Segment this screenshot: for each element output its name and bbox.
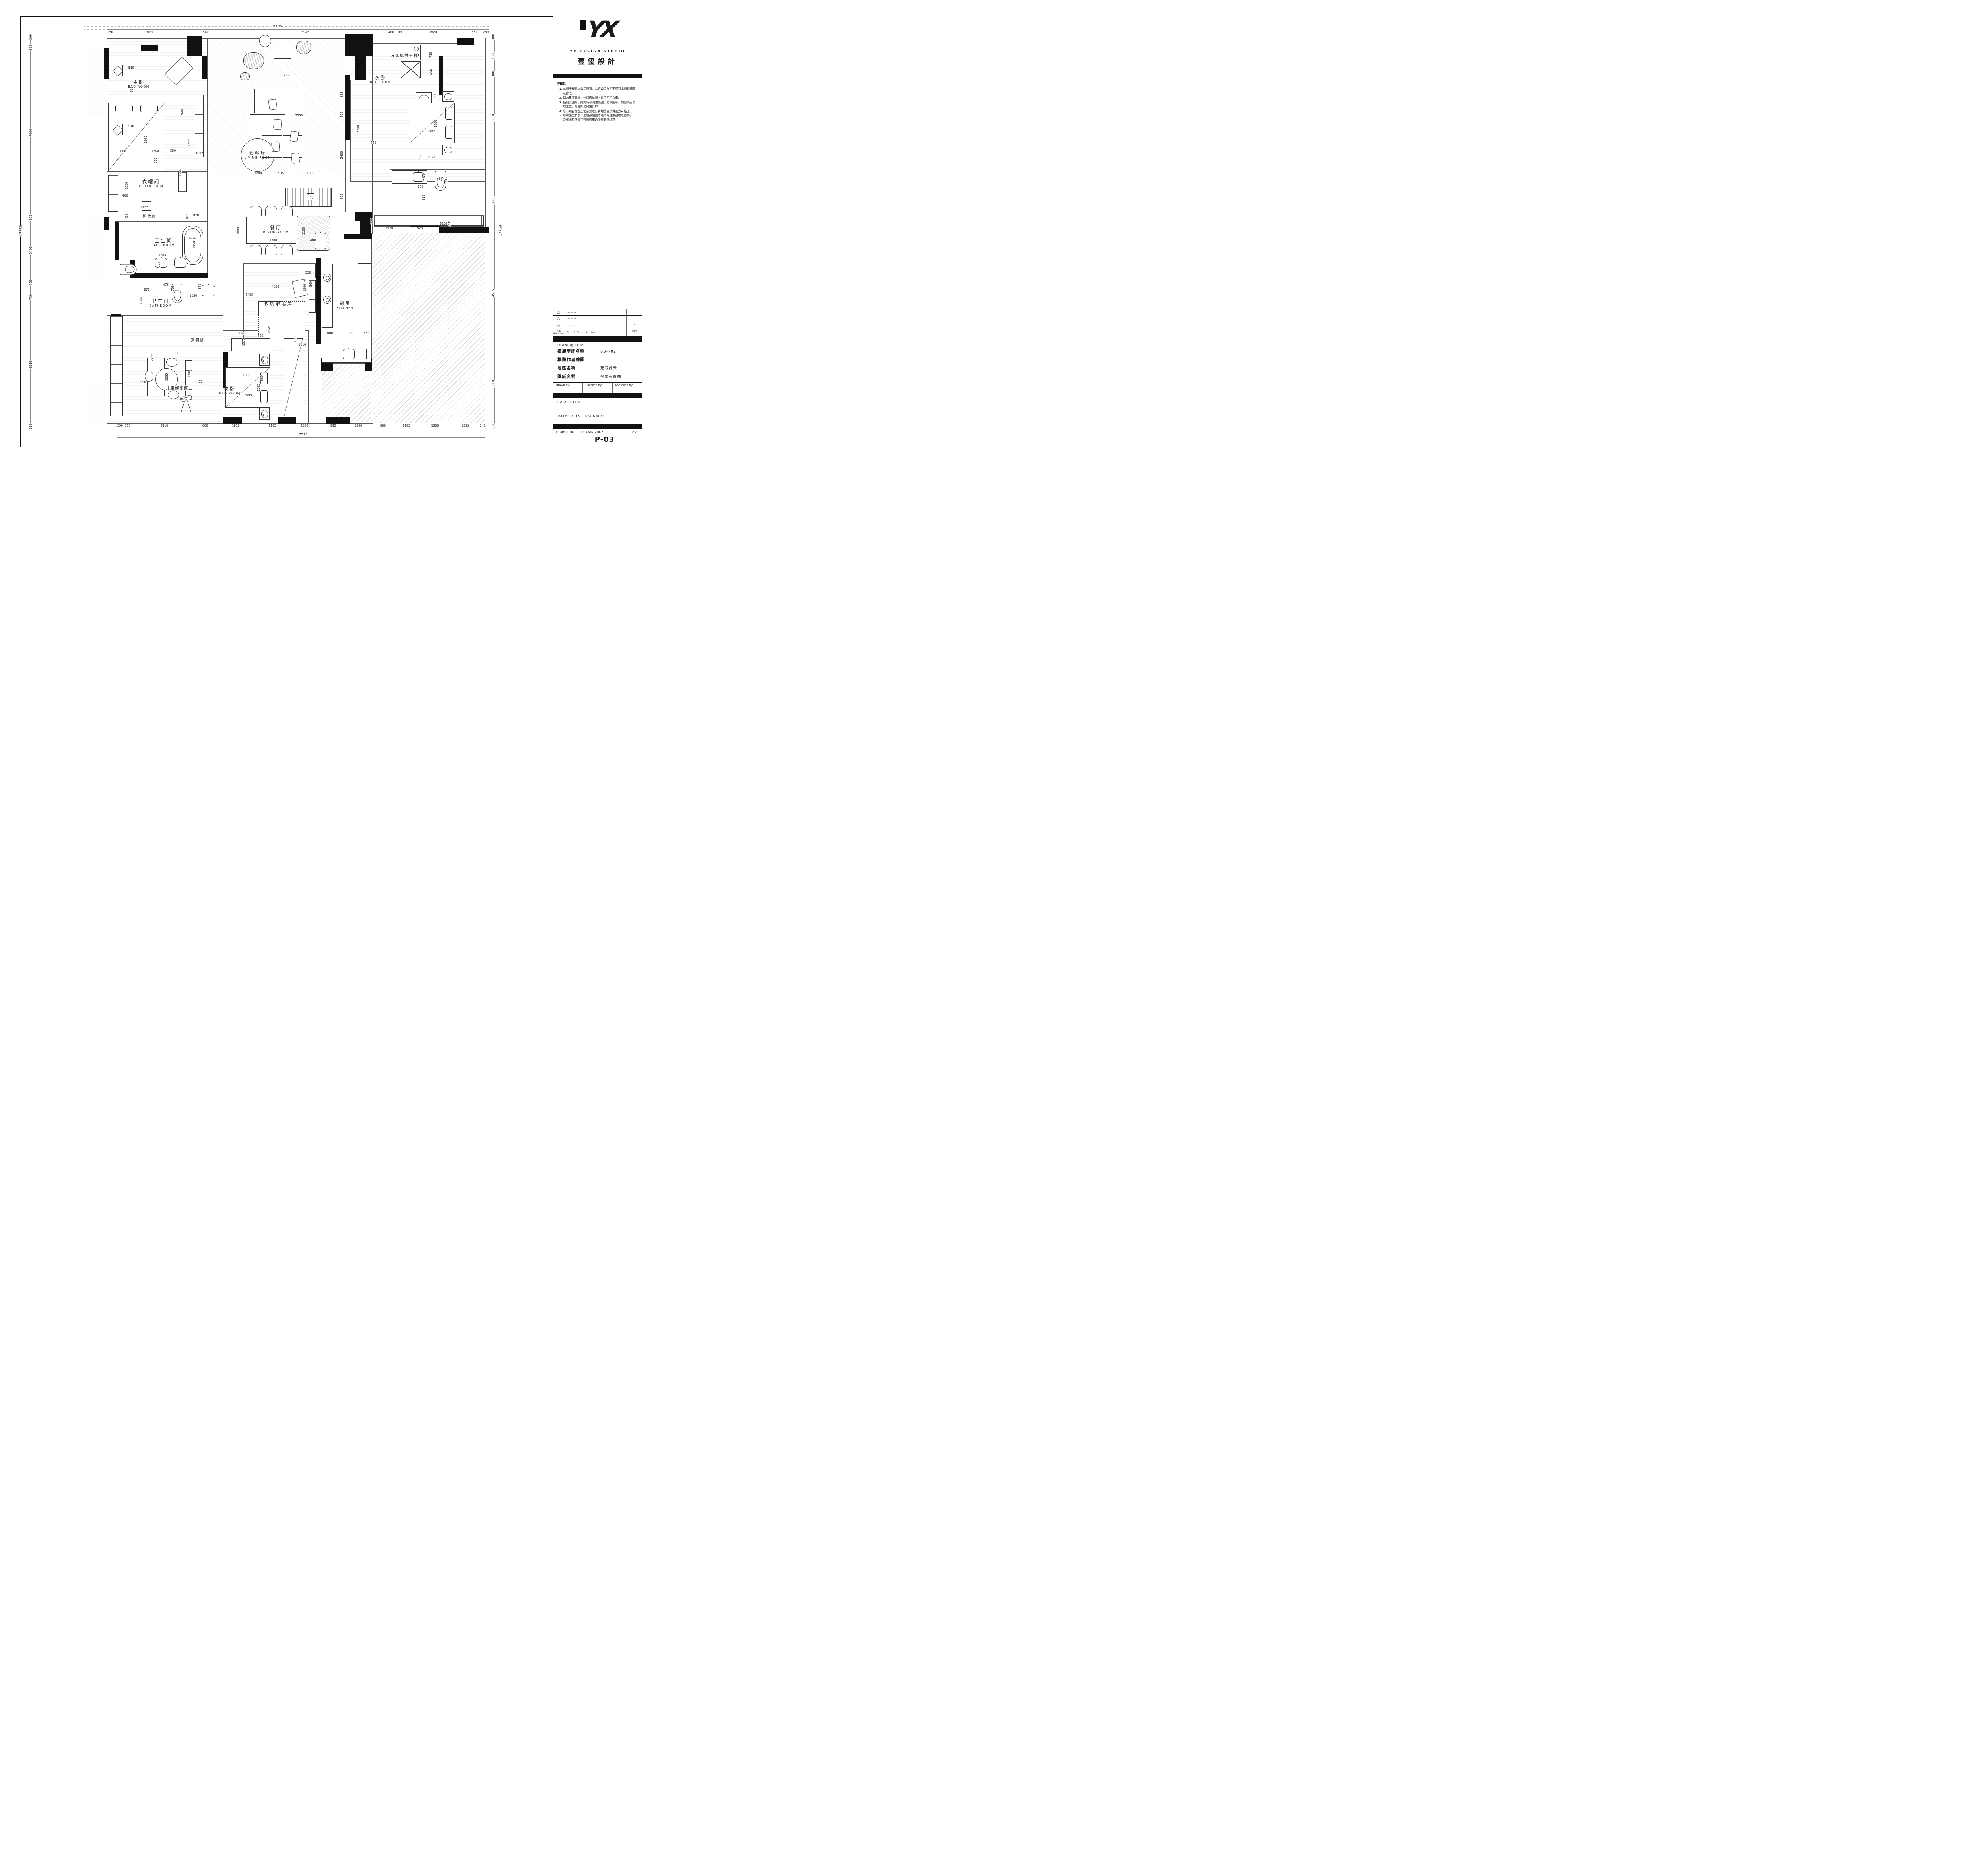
floor-hatch bbox=[85, 38, 106, 424]
dim-label: 600 bbox=[122, 194, 128, 198]
dining-chair bbox=[250, 245, 262, 255]
kitchen-sink bbox=[343, 349, 355, 359]
dim-label: 2700 bbox=[151, 353, 154, 361]
dim-label: 400 bbox=[186, 213, 189, 219]
dim-label: 1110 bbox=[298, 343, 306, 346]
revision-header: No. Revision Brief Description Date bbox=[553, 328, 642, 337]
dining-chair bbox=[281, 245, 293, 255]
title-block: YX YX DESIGN STUDIO 壹玺設計 附註: 此圖版權歸本公司所有，… bbox=[553, 16, 642, 447]
sofa-pillow bbox=[273, 119, 282, 130]
dim-label: 17760 bbox=[499, 225, 503, 236]
dim-label: 1540 bbox=[200, 31, 209, 34]
dim-label: 440 bbox=[370, 141, 377, 144]
dim-label: 1200 bbox=[254, 172, 262, 175]
revision-date: - bbox=[626, 322, 642, 328]
dining-chair bbox=[281, 206, 293, 216]
toilet-bowl bbox=[125, 266, 135, 273]
faucet-icon bbox=[208, 284, 209, 285]
kitchen-tray bbox=[358, 349, 367, 359]
dim-label: 1235 bbox=[461, 424, 469, 427]
dim-label: 350 bbox=[170, 149, 176, 153]
dim-label: 400 bbox=[125, 213, 128, 219]
field-label: 圖紙名稱 bbox=[557, 373, 600, 379]
dim-label: 800 bbox=[340, 111, 344, 118]
wall-segment bbox=[326, 417, 350, 424]
kids-chair bbox=[166, 358, 177, 367]
dim-label: 910 bbox=[422, 194, 425, 201]
dim-label: 1105 bbox=[402, 424, 410, 427]
dim-label: 280 bbox=[483, 31, 489, 34]
island-sink bbox=[315, 233, 326, 249]
wall-line bbox=[107, 38, 107, 424]
dim-label: 400 bbox=[388, 31, 394, 34]
dim-label: 1000 bbox=[237, 227, 240, 235]
dim-label: 1200 bbox=[188, 369, 191, 378]
field-label: 樓層房間名稱 bbox=[557, 348, 600, 354]
dim-label: 550 bbox=[158, 262, 161, 268]
wall-segment bbox=[355, 56, 366, 80]
revision-no-label: No. Revision bbox=[553, 328, 564, 336]
dim-label: 920 bbox=[193, 214, 199, 217]
dim-label: 475 bbox=[163, 283, 169, 287]
studio-name-cn: 壹玺設計 bbox=[553, 56, 642, 66]
toilet-master bbox=[120, 264, 137, 275]
dim-label: 1500 bbox=[294, 334, 297, 342]
dim-label: 600 bbox=[340, 193, 344, 200]
dim-label: 540 bbox=[198, 283, 202, 290]
wall-line bbox=[372, 233, 485, 233]
drawing-no-cell: DRAWING NO.: P-03 bbox=[579, 429, 628, 447]
revision-desc: ------- bbox=[564, 311, 626, 314]
faucet-icon bbox=[161, 257, 162, 258]
dim-label: 1500 bbox=[303, 283, 307, 292]
stove-burner bbox=[323, 274, 331, 282]
room-name-en: DININGROOM bbox=[263, 231, 289, 235]
dimension-line bbox=[107, 35, 489, 35]
triangle-icon: △ bbox=[553, 322, 564, 328]
field-row: 樓層房間名稱 6B-702 bbox=[557, 348, 638, 354]
room-bedroom-right: 次卧BED ROOM bbox=[370, 75, 391, 84]
circle-detail bbox=[444, 93, 452, 101]
dim-label: 300 bbox=[492, 34, 495, 40]
dim-label: 780 bbox=[29, 294, 33, 300]
dimension-line bbox=[117, 429, 485, 429]
divider-bar bbox=[553, 337, 642, 342]
wall-segment bbox=[439, 227, 489, 233]
basin-2 bbox=[202, 285, 215, 296]
burner-ring bbox=[326, 298, 330, 302]
room-name-cn: 多功能书房 bbox=[263, 302, 293, 307]
cabinet-master bbox=[195, 95, 204, 157]
dim-label: 3805 bbox=[492, 196, 495, 204]
dim-label: 17760 bbox=[20, 225, 23, 236]
dimension-line bbox=[107, 29, 489, 30]
room-name-en: CLOAKROOM bbox=[139, 185, 163, 188]
burner-ring bbox=[326, 276, 330, 280]
dim-label: 550 bbox=[140, 381, 146, 384]
revision-row: △ ------- - bbox=[553, 322, 642, 328]
dim-label: 650 bbox=[363, 332, 370, 335]
armchair-living bbox=[274, 43, 291, 59]
dim-label: 850 bbox=[417, 185, 424, 188]
room-name-cn: 衣帽间 bbox=[139, 179, 163, 185]
dim-label: 550 bbox=[419, 154, 422, 161]
logo-mark: YX bbox=[553, 19, 642, 48]
faucet-icon bbox=[320, 232, 321, 233]
plant-3 bbox=[296, 41, 311, 54]
dim-label: 550 bbox=[260, 375, 264, 381]
tv-unit bbox=[307, 193, 314, 200]
dim-label: 1790 bbox=[179, 168, 182, 177]
dim-label: 350 bbox=[370, 218, 373, 224]
dim-label: 1130 bbox=[189, 294, 197, 297]
side-table bbox=[259, 35, 271, 47]
wall-segment bbox=[278, 417, 296, 424]
dim-label: 1300 bbox=[431, 424, 439, 427]
dim-label: 1100 bbox=[302, 227, 305, 235]
dim-label: 600 bbox=[154, 157, 157, 164]
dim-label: 3280 bbox=[357, 124, 360, 133]
room-name-en: KITCHEN bbox=[337, 307, 354, 310]
nightstand-master-1 bbox=[112, 65, 123, 76]
room-name-en: BED ROOM bbox=[219, 392, 241, 396]
dim-label: 315 bbox=[124, 424, 131, 427]
dim-label: 1950 bbox=[193, 241, 196, 249]
dimension-line bbox=[494, 34, 495, 429]
divider-bar bbox=[553, 424, 642, 429]
diamond-detail bbox=[113, 66, 123, 76]
dim-label: 710 bbox=[429, 52, 433, 58]
dim-label: 600 bbox=[120, 150, 126, 153]
dim-label: 890 bbox=[172, 352, 179, 355]
dim-label: 1760 bbox=[151, 150, 159, 153]
dim-label: 1185 bbox=[268, 424, 276, 427]
dim-label: 1050 bbox=[439, 222, 447, 225]
note-item: 所有施工及製作工程必須遵守通用的建築規範及條例，以及該圖紙所屬工程所適用的所有其… bbox=[563, 114, 638, 122]
dim-label: 880 bbox=[380, 424, 386, 427]
triangle-icon: △ bbox=[553, 309, 564, 315]
dim-label: 895 bbox=[330, 424, 336, 427]
dim-label: 650 bbox=[430, 69, 433, 75]
dim-label: 250 bbox=[107, 31, 113, 34]
dim-label: 4200 bbox=[271, 285, 280, 289]
sofa-pillow bbox=[268, 99, 277, 111]
dim-label: 3600 bbox=[492, 379, 495, 388]
dim-label: 400 bbox=[199, 379, 202, 386]
daybed-mattress bbox=[284, 305, 301, 338]
bed-right bbox=[410, 103, 455, 143]
control-circle-icon bbox=[414, 47, 419, 51]
dim-label: 2020 bbox=[385, 227, 393, 230]
drawing-number: P-03 bbox=[581, 435, 628, 444]
wall-segment bbox=[141, 45, 158, 51]
wall-line bbox=[243, 263, 244, 342]
fridge bbox=[358, 263, 371, 282]
wall-segment bbox=[360, 221, 371, 234]
wall-line bbox=[115, 221, 208, 222]
notes-title: 附註: bbox=[557, 81, 638, 86]
dim-label: 2120 bbox=[427, 156, 436, 159]
wall-segment bbox=[355, 212, 372, 221]
wall-segment bbox=[345, 34, 373, 56]
wall-segment bbox=[344, 234, 372, 239]
dim-label: 250 bbox=[29, 423, 33, 430]
room-name-cn: 卫生间 bbox=[149, 299, 171, 304]
dim-label: 16105 bbox=[270, 25, 282, 29]
dim-label: 800 bbox=[310, 239, 316, 242]
wall-segment bbox=[439, 56, 443, 95]
dim-label: 400 bbox=[257, 334, 264, 338]
dim-label: 1840 bbox=[268, 325, 271, 334]
toilet-bowl bbox=[174, 290, 181, 301]
divider-bar bbox=[553, 74, 642, 78]
blanket-fold bbox=[410, 103, 454, 143]
dim-label: 3630 bbox=[492, 113, 495, 122]
field-label: 地區名稱 bbox=[557, 365, 600, 371]
pegboard-shelf bbox=[185, 360, 192, 397]
plant-1 bbox=[243, 52, 264, 69]
dim-label: 900 bbox=[283, 74, 290, 77]
dim-label: 300 bbox=[29, 34, 33, 40]
logo-square-icon bbox=[580, 20, 586, 30]
dim-label: 5310 bbox=[29, 360, 33, 369]
dim-label: 705 bbox=[171, 285, 175, 291]
dim-label: 600 bbox=[327, 332, 333, 335]
project-no-cell: PROJECT NO: bbox=[553, 429, 579, 447]
dim-label: 1455 bbox=[245, 293, 253, 297]
washer-dryer-stack bbox=[401, 61, 421, 78]
dim-label: 100 bbox=[396, 31, 402, 34]
room-dining: 餐厅DININGROOM bbox=[263, 225, 289, 234]
room-name-en: BED ROOM bbox=[370, 81, 391, 84]
label-easel: 画架 bbox=[180, 396, 189, 401]
dim-label: 680 bbox=[471, 31, 478, 34]
dim-label: 2065 bbox=[427, 130, 436, 133]
wall-segment bbox=[104, 217, 109, 230]
room-name-cn: 次卧 bbox=[219, 386, 241, 392]
notes: 附註: 此圖版權歸本公司所有，未經公司許可不得對本圖紙翻印及修改; 切勿量度此圖… bbox=[553, 78, 642, 123]
dim-label: 850 bbox=[448, 221, 451, 227]
basin bbox=[155, 258, 167, 268]
issued-for-label: ISSUED FOR: bbox=[557, 400, 638, 404]
drawing-title-label: Drawing Title: bbox=[557, 343, 638, 347]
revision-desc: ------- bbox=[564, 324, 626, 327]
dim-label: 6945 bbox=[301, 31, 309, 34]
field-row: 地區名稱 建发养云 bbox=[557, 365, 638, 371]
floor-hatch bbox=[322, 365, 371, 422]
field-label: 標題作者繪圖 bbox=[557, 357, 600, 363]
wall-line bbox=[345, 140, 346, 212]
field-row: 圖紙名稱 平面布置图 bbox=[557, 373, 638, 379]
room-name-cn: 会客厅 bbox=[241, 151, 274, 156]
room-study: 多功能书房 bbox=[263, 302, 293, 307]
nightstand-master-2 bbox=[112, 124, 123, 135]
dim-label: 2420 bbox=[29, 246, 33, 254]
dim-label: 815 bbox=[340, 91, 344, 98]
label-pegboard: 洞洞板 bbox=[191, 337, 205, 343]
dim-label: 2065 bbox=[244, 394, 252, 397]
room-name-en: LIVING ROOM bbox=[241, 156, 274, 160]
room-name-en: BATHROOM bbox=[153, 244, 175, 247]
dim-label: 1300 bbox=[140, 296, 143, 305]
label-washer-dryer: 洗衣机烘干机 bbox=[390, 52, 418, 58]
wall-line bbox=[207, 171, 208, 278]
dim-label: 250 bbox=[492, 423, 495, 430]
dim-label: 510 bbox=[128, 66, 134, 70]
room-name-cn: 次卧 bbox=[370, 75, 391, 81]
revision-date: - bbox=[626, 316, 642, 322]
dim-label: 600 bbox=[29, 44, 33, 50]
note-item: 使用此圖時，應同時參照建築圖，結構圖等，如發現有矛盾之處，應立即通知設計師; bbox=[563, 101, 638, 109]
drawing-sheet: 主卧BED ROOM会客厅LIVING ROOM次卧BED ROOM衣帽间CLO… bbox=[0, 0, 658, 465]
room-name-cn: 餐厅 bbox=[263, 225, 289, 231]
dim-label: 500 bbox=[309, 281, 313, 287]
label-dressing-table: 梳妆台 bbox=[143, 213, 157, 219]
dim-label: 915 bbox=[278, 172, 284, 175]
revision-desc: ------- bbox=[564, 317, 626, 320]
dim-label: 1530 bbox=[300, 424, 309, 427]
dim-label: 490 bbox=[29, 280, 33, 286]
wall-line bbox=[308, 330, 309, 424]
dim-label: 520 bbox=[29, 214, 33, 221]
dim-label: 2810 bbox=[160, 424, 168, 427]
border-guide-line bbox=[84, 23, 489, 23]
cloak-shelves-left bbox=[108, 175, 118, 212]
dim-label: 1910 bbox=[231, 424, 240, 427]
border-guide-line bbox=[84, 26, 489, 27]
dim-label: 3090 bbox=[146, 31, 154, 34]
dim-label: 300 bbox=[492, 71, 495, 77]
date-of-issuance-label: DATE OF 1ST ISSUANCE: bbox=[557, 414, 638, 418]
dim-label: 550 bbox=[305, 271, 311, 274]
dim-label: 620 bbox=[181, 109, 184, 115]
room-bathroom-master: 卫生间BATHROOM bbox=[153, 238, 175, 247]
wall-segment bbox=[457, 38, 474, 45]
dim-label: 1800 bbox=[242, 374, 250, 377]
dim-label: 240 bbox=[480, 424, 486, 427]
room-living: 会客厅LIVING ROOM bbox=[241, 138, 274, 172]
wall-line bbox=[107, 38, 373, 39]
dining-chair bbox=[250, 206, 262, 216]
triangle-icon: △ bbox=[553, 316, 564, 322]
dim-label: 2820 bbox=[429, 31, 437, 34]
dim-label: 450 bbox=[195, 152, 202, 155]
dining-chair bbox=[265, 206, 277, 216]
signoff-row: Drawn by: Checked by: Approved by: bbox=[553, 382, 642, 393]
nightstand-right-1 bbox=[442, 91, 454, 102]
wardrobe-right bbox=[374, 216, 484, 226]
dim-label: 475 bbox=[436, 178, 443, 181]
room-cloakroom: 衣帽间CLOAKROOM bbox=[139, 179, 163, 188]
desk-bottom bbox=[231, 338, 270, 351]
wall-segment bbox=[345, 75, 350, 140]
diamond-detail bbox=[113, 125, 123, 135]
dim-label: 2550 bbox=[295, 114, 303, 117]
dining-chair bbox=[265, 245, 277, 255]
basin bbox=[174, 258, 186, 268]
field-value: 平面布置图 bbox=[600, 373, 621, 379]
field-value: 建发养云 bbox=[600, 365, 617, 371]
dim-label: 1085 bbox=[238, 332, 247, 335]
dim-label: 1020 bbox=[188, 237, 196, 240]
kids-chair bbox=[145, 371, 153, 382]
dim-label: 510 bbox=[128, 125, 134, 128]
logo-glyph: YX bbox=[586, 19, 617, 41]
wall-segment bbox=[187, 36, 202, 56]
revision-row: △ ------- - bbox=[553, 309, 642, 316]
dim-label: 520 bbox=[434, 93, 437, 100]
dimension-line bbox=[117, 437, 485, 438]
field-row: 標題作者繪圖 bbox=[557, 357, 638, 363]
divider-bar bbox=[553, 393, 642, 398]
wall-segment bbox=[115, 222, 119, 260]
dim-label: 520 bbox=[262, 357, 265, 363]
drawing-title-section: Drawing Title: 樓層房間名稱 6B-702 標題作者繪圖 地區名稱… bbox=[553, 342, 642, 382]
revision-desc-label: Brief Description bbox=[564, 331, 626, 334]
dim-label: 2380 bbox=[125, 181, 128, 190]
dim-label: 1600 bbox=[434, 119, 437, 128]
dim-label: 470 bbox=[422, 173, 425, 179]
sofa-module bbox=[280, 89, 303, 113]
faucet-icon bbox=[180, 257, 181, 258]
field-value: 6B-702 bbox=[600, 349, 616, 354]
wall-line bbox=[371, 233, 372, 364]
studio-name-en: YX DESIGN STUDIO bbox=[553, 50, 642, 54]
wall-segment bbox=[223, 417, 242, 424]
nightstand-right-2 bbox=[442, 145, 454, 155]
dim-label: 1155 bbox=[140, 206, 148, 209]
kids-chair bbox=[168, 390, 179, 399]
room-bedroom-bottom: 次卧BED ROOM bbox=[219, 386, 241, 395]
dim-label: 2400 bbox=[340, 151, 344, 159]
floor-hatch bbox=[372, 233, 485, 423]
dimension-line bbox=[30, 34, 31, 429]
checked-by-cell: Checked by: bbox=[583, 383, 612, 393]
plant-2 bbox=[240, 72, 250, 80]
dim-label: 1800 bbox=[306, 172, 315, 175]
circle-detail bbox=[444, 147, 452, 154]
revision-table: △ ------- - △ ------- - △ ------- - No. … bbox=[553, 309, 642, 337]
dim-label: 600 bbox=[130, 86, 134, 93]
room-name-en: BATHROOM bbox=[149, 304, 171, 308]
faucet-icon bbox=[348, 348, 349, 349]
approved-by-cell: Approved by: bbox=[613, 383, 642, 393]
kids-wardrobe bbox=[110, 316, 123, 416]
dim-label: 660 bbox=[202, 424, 208, 427]
note-item: 此圖版權歸本公司所有，未經公司許可不得對本圖紙翻印及修改; bbox=[563, 87, 638, 95]
wall-segment bbox=[202, 56, 207, 79]
wall-segment bbox=[104, 48, 109, 79]
stove-burner bbox=[323, 296, 331, 304]
wall-segment bbox=[316, 258, 321, 344]
dim-label: 820 bbox=[417, 227, 423, 230]
dim-label: 7090 bbox=[29, 128, 33, 137]
dim-label: 520 bbox=[262, 411, 265, 417]
room-name-cn: 厨房 bbox=[337, 301, 354, 307]
dim-label: 705 bbox=[445, 177, 448, 183]
room-bathroom-2: 卫生间BATHROOM bbox=[149, 299, 171, 307]
dim-label: 250 bbox=[117, 424, 123, 427]
room-name-cn: 主卧 bbox=[128, 80, 149, 85]
drawn-by-cell: Drawn by: bbox=[553, 383, 583, 393]
wall-line bbox=[485, 38, 486, 233]
wardrobe-bottom bbox=[284, 338, 303, 416]
dim-label: 1575 bbox=[242, 338, 245, 346]
sofa-pillow bbox=[291, 153, 300, 164]
sofa-pillow bbox=[289, 131, 299, 142]
project-row: PROJECT NO: DRAWING NO.: P-03 REV. bbox=[553, 429, 642, 447]
revision-date-label: Date bbox=[626, 328, 642, 336]
